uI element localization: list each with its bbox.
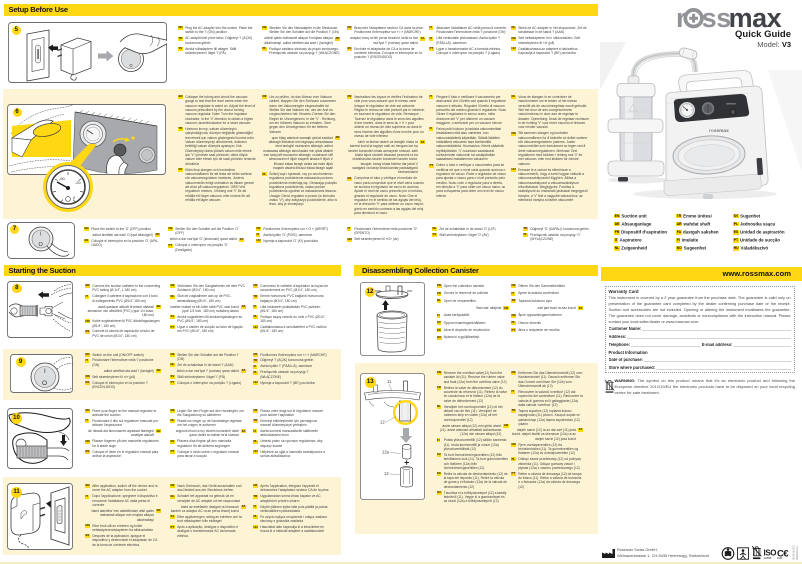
svg-text:I: I xyxy=(40,231,41,237)
svg-text:OBM-V3-EU: OBM-V3-EU xyxy=(796,546,799,560)
svg-text:12: 12 xyxy=(380,420,385,425)
svg-text:ss: ss xyxy=(702,5,731,31)
svg-text:12: 12 xyxy=(384,471,389,476)
svg-text:-20: -20 xyxy=(75,180,82,185)
svg-text:12a: 12a xyxy=(382,450,390,455)
svg-text:0123: 0123 xyxy=(777,557,783,560)
svg-text:max: max xyxy=(729,5,782,31)
svg-text:O: O xyxy=(39,242,44,248)
svg-text:rossmax: rossmax xyxy=(709,128,729,134)
svg-text:13485: 13485 xyxy=(764,556,772,560)
svg-text:rossmax: rossmax xyxy=(726,102,737,106)
svg-text:O: O xyxy=(42,380,47,387)
svg-text:11: 11 xyxy=(387,379,392,384)
svg-text:-60: -60 xyxy=(59,176,66,181)
